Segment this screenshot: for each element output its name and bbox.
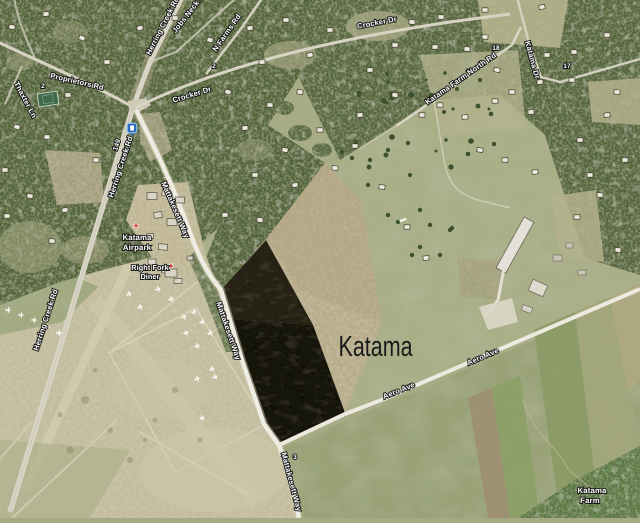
svg-text:Diner: Diner (140, 272, 159, 281)
svg-text:Right Fork: Right Fork (131, 263, 168, 272)
svg-text:Katama: Katama (339, 331, 413, 363)
svg-text:Farm: Farm (580, 496, 600, 505)
svg-text:18: 18 (492, 45, 500, 52)
svg-text:2: 2 (212, 63, 216, 70)
svg-text:Airpark: Airpark (123, 243, 152, 252)
svg-text:Katama: Katama (122, 233, 152, 242)
svg-text:17: 17 (563, 63, 571, 70)
svg-text:3: 3 (293, 454, 297, 461)
svg-text:2: 2 (41, 83, 45, 90)
svg-text:Katama: Katama (577, 486, 607, 495)
